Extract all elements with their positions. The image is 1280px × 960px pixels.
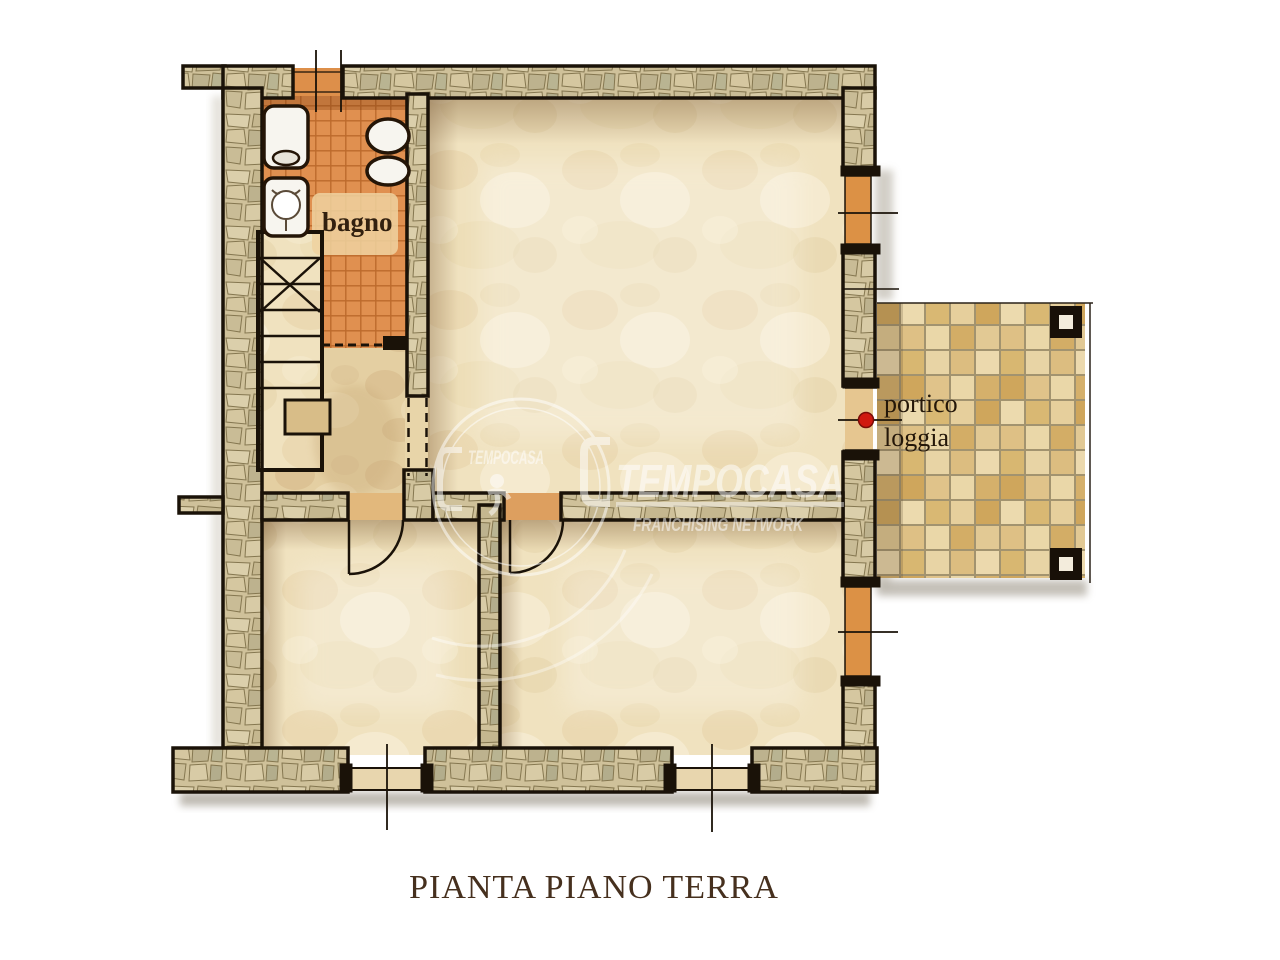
floor-plan-drawing: TEMPOCASA TEMPOCASA FRANCHISING NETWORK … [0, 0, 1280, 960]
portico-column [1050, 548, 1082, 580]
right-wall-seg [843, 88, 875, 174]
portico-column [1050, 306, 1082, 338]
stair-landing [285, 400, 330, 434]
portico-label-line1: portico [884, 389, 958, 418]
door-threshold [504, 493, 561, 520]
sink-fixture [367, 119, 409, 153]
sink-fixture [367, 157, 409, 185]
right-wall-seg [843, 246, 875, 386]
bottom-window-left [340, 744, 433, 830]
window-sill [845, 176, 871, 244]
bedroom-divider-wall [479, 505, 500, 748]
right-wall-seg [843, 452, 875, 585]
top-wall-stub [183, 66, 225, 88]
door-threshold [348, 493, 404, 520]
hall-post [404, 470, 433, 520]
red-door-marker [859, 413, 874, 428]
bottom-wall-seg [425, 748, 672, 792]
watermark-brand-small: TEMPOCASA [468, 448, 544, 469]
toilet-fixture [264, 106, 308, 168]
bottom-wall-seg [752, 748, 877, 792]
watermark-brand-large: TEMPOCASA [616, 455, 844, 507]
bidet-fixture [264, 178, 308, 236]
page-title: PIANTA PIANO TERRA [409, 869, 779, 906]
portico-label-line2: loggia [884, 423, 949, 452]
watermark-underline [616, 502, 844, 507]
floor-plan-page: TEMPOCASA TEMPOCASA FRANCHISING NETWORK … [0, 0, 1280, 960]
interior-wall-seg [262, 493, 348, 520]
bottom-wall-seg [173, 748, 348, 792]
watermark-tagline: FRANCHISING NETWORK [633, 515, 805, 535]
bathroom-wall-stub [383, 336, 407, 350]
bathroom-label: bagno [322, 207, 393, 237]
bottom-window-right [664, 744, 760, 832]
left-wall-stub [179, 497, 223, 513]
